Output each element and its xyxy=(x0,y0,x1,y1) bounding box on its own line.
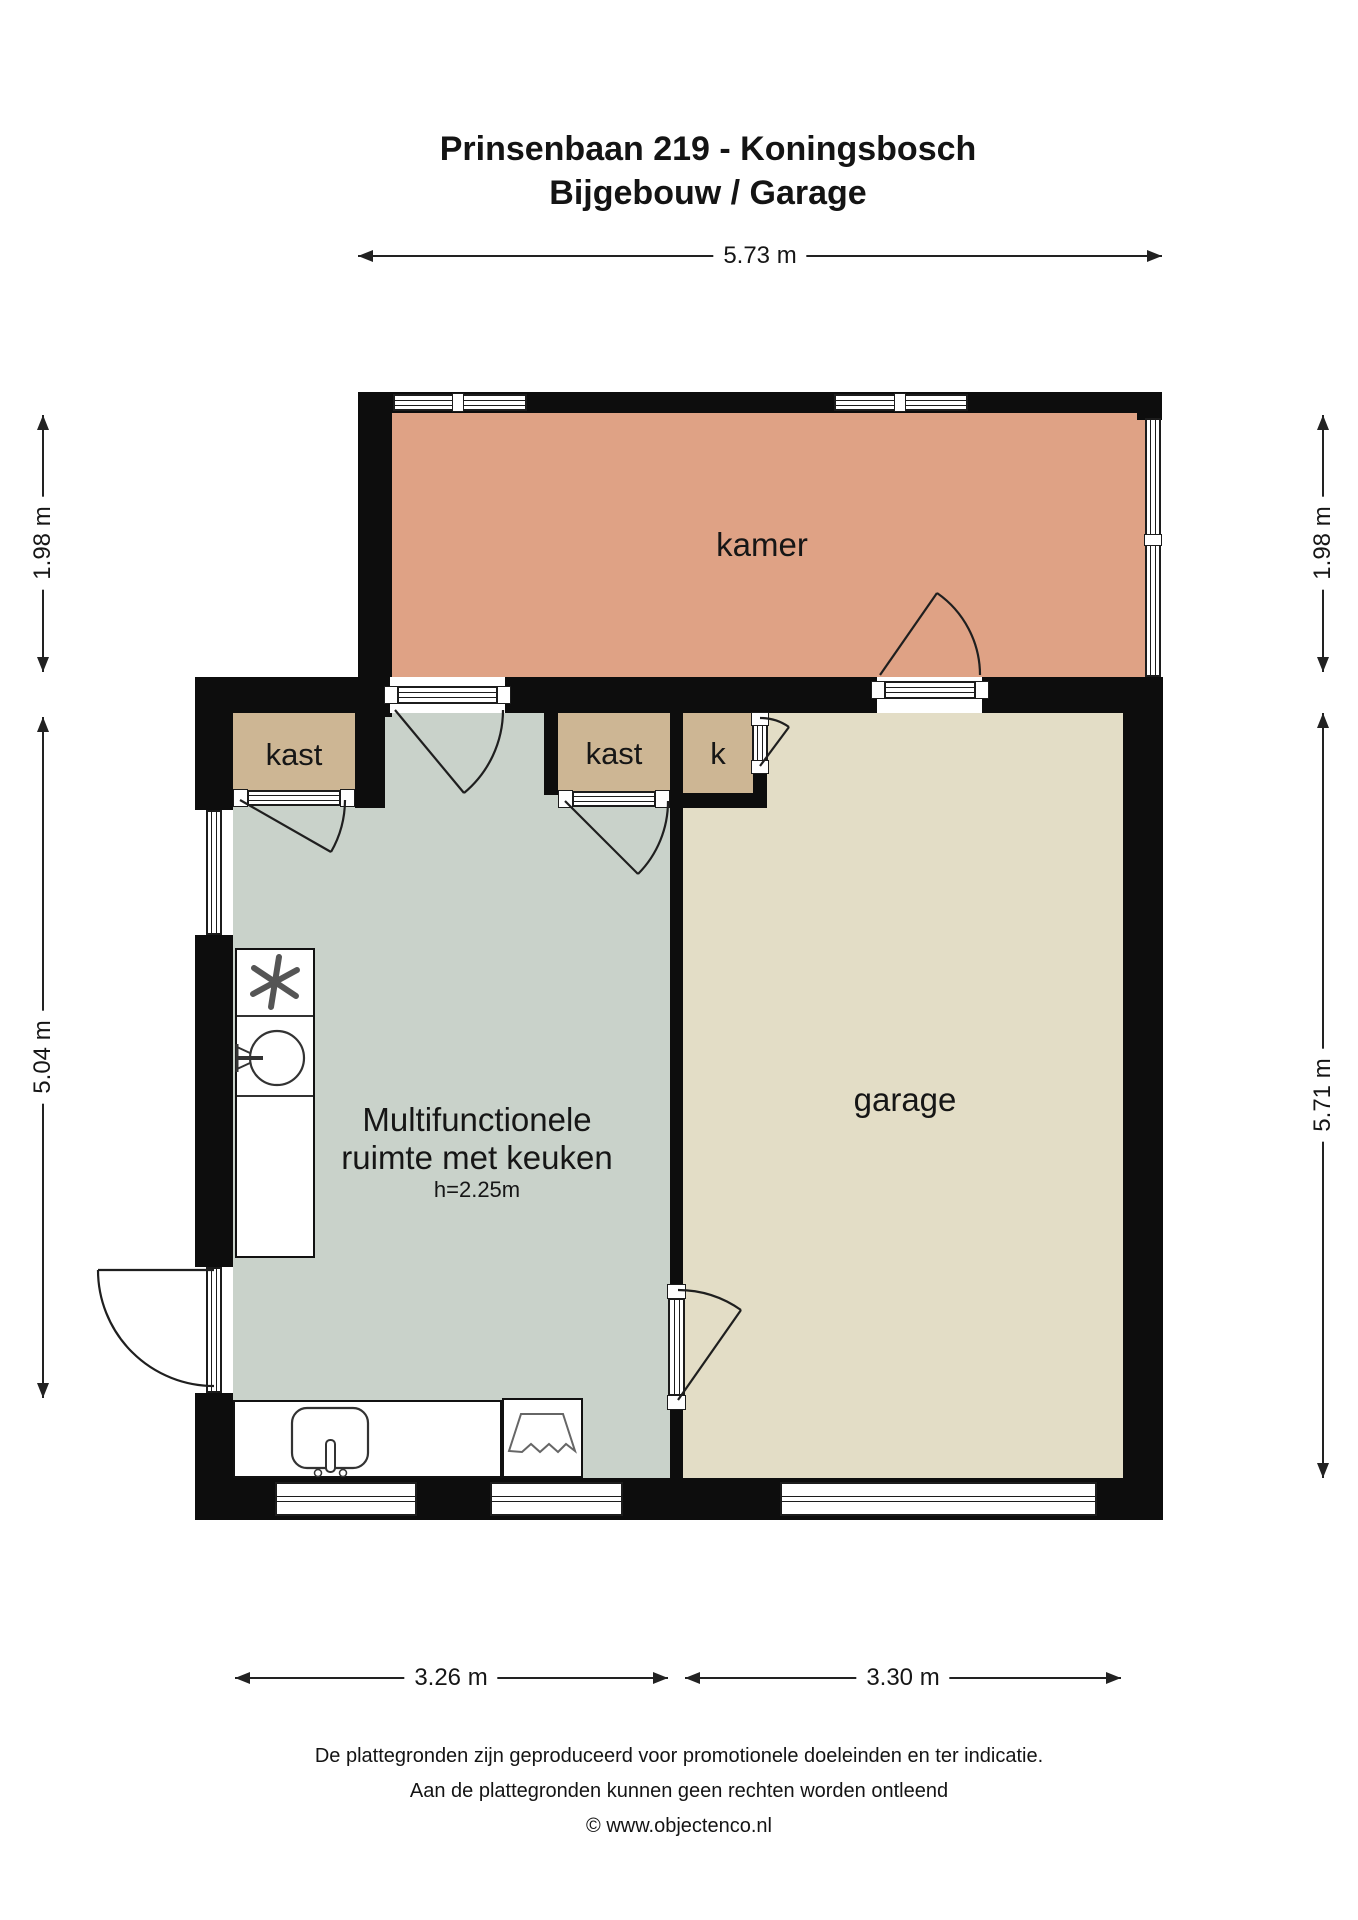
window-left-wall xyxy=(206,810,222,935)
door-jamb xyxy=(975,681,989,699)
footer-line2: Aan de plattegronden kunnen geen rechten… xyxy=(0,1780,1358,1803)
label-kast-mid: kast xyxy=(586,736,643,772)
door-threshold-kast-mid xyxy=(572,791,656,807)
dim-arrow xyxy=(685,1672,700,1684)
page-title-line2: Bijgebouw / Garage xyxy=(358,174,1058,213)
dim-arrow xyxy=(653,1672,668,1684)
door-threshold-kamer-multi xyxy=(397,686,498,704)
kitchen-counter-bottom xyxy=(233,1400,502,1478)
window-bottom-3 xyxy=(780,1482,1097,1516)
dim-arrow xyxy=(1317,415,1329,430)
door-jamb xyxy=(233,789,248,807)
dim-arrow xyxy=(358,250,373,262)
label-kamer: kamer xyxy=(716,526,808,564)
door-swing-exterior xyxy=(98,1270,214,1386)
dim-arrow xyxy=(37,717,49,732)
dim-arrow xyxy=(235,1672,250,1684)
door-jamb xyxy=(751,712,769,726)
window-kamer-right-mullion xyxy=(1144,534,1162,546)
dim-arrow xyxy=(37,415,49,430)
kitchen-counter-left xyxy=(235,948,315,1258)
wall-divider-upper xyxy=(670,713,683,1290)
window-kamer-top-1-mullion xyxy=(452,393,464,412)
counter-divider xyxy=(237,1015,313,1017)
dim-arrow xyxy=(1317,713,1329,728)
dim-arrow xyxy=(1317,657,1329,672)
wall-kast-mid-left xyxy=(544,713,558,795)
door-threshold-multi-garage xyxy=(668,1298,685,1396)
wall-lower-top xyxy=(195,677,1163,713)
wall-divider-lower xyxy=(670,1403,683,1478)
dim-arrow xyxy=(1106,1672,1121,1684)
stove-cabinet xyxy=(502,1398,583,1478)
door-jamb xyxy=(751,760,769,774)
dim-label-bottom-right: 3.30 m xyxy=(856,1662,949,1694)
window-bottom-1 xyxy=(275,1482,417,1516)
label-multi-line1: Multifunctionele xyxy=(362,1101,591,1139)
door-jamb xyxy=(384,686,398,704)
window-kamer-top-2-mullion xyxy=(894,393,906,412)
wall-left-seg2 xyxy=(195,935,233,1267)
label-k-room: k xyxy=(710,736,726,772)
dim-arrow xyxy=(37,1383,49,1398)
door-threshold-exterior xyxy=(206,1267,222,1393)
dim-label-left-lower: 5.04 m xyxy=(27,1010,59,1103)
door-jamb xyxy=(667,1395,686,1410)
dim-arrow xyxy=(1317,1463,1329,1478)
wall-k-bottom xyxy=(683,793,767,808)
dim-arrow xyxy=(37,657,49,672)
dim-label-bottom-left: 3.26 m xyxy=(404,1662,497,1694)
wall-kast-left-right xyxy=(355,713,385,808)
footer-line3: © www.objectenco.nl xyxy=(0,1815,1358,1838)
door-jamb xyxy=(667,1284,686,1299)
door-jamb xyxy=(655,790,670,808)
window-kamer-right xyxy=(1145,418,1161,677)
label-multi-height: h=2.25m xyxy=(434,1177,520,1203)
counter-divider xyxy=(237,1095,313,1097)
dim-label-top: 5.73 m xyxy=(713,240,806,272)
dim-label-right-upper: 1.98 m xyxy=(1307,496,1339,589)
page-title-line1: Prinsenbaan 219 - Koningsbosch xyxy=(358,130,1058,169)
wall-left-seg1 xyxy=(195,677,233,810)
door-jamb xyxy=(497,686,511,704)
dim-arrow xyxy=(1147,250,1162,262)
wall-right xyxy=(1123,713,1163,1520)
dim-label-left-upper: 1.98 m xyxy=(27,496,59,589)
window-bottom-2 xyxy=(490,1482,623,1516)
door-jamb xyxy=(340,789,355,807)
door-jamb xyxy=(558,790,573,808)
wall-kamer-left xyxy=(358,392,392,717)
dim-label-right-lower: 5.71 m xyxy=(1307,1048,1339,1141)
floorplan-page: Prinsenbaan 219 - Koningsbosch Bijgebouw… xyxy=(0,0,1358,1920)
footer-line1: De plattegronden zijn geproduceerd voor … xyxy=(0,1745,1358,1768)
wall-kamer-topright-corner xyxy=(1137,392,1162,420)
door-threshold-k xyxy=(752,724,768,762)
label-multi-line2: ruimte met keuken xyxy=(341,1139,612,1177)
label-kast-left: kast xyxy=(266,737,323,773)
door-threshold-kamer-garage xyxy=(884,681,976,699)
label-garage: garage xyxy=(854,1081,957,1119)
door-jamb xyxy=(871,681,885,699)
door-threshold-kast-left xyxy=(247,790,341,806)
